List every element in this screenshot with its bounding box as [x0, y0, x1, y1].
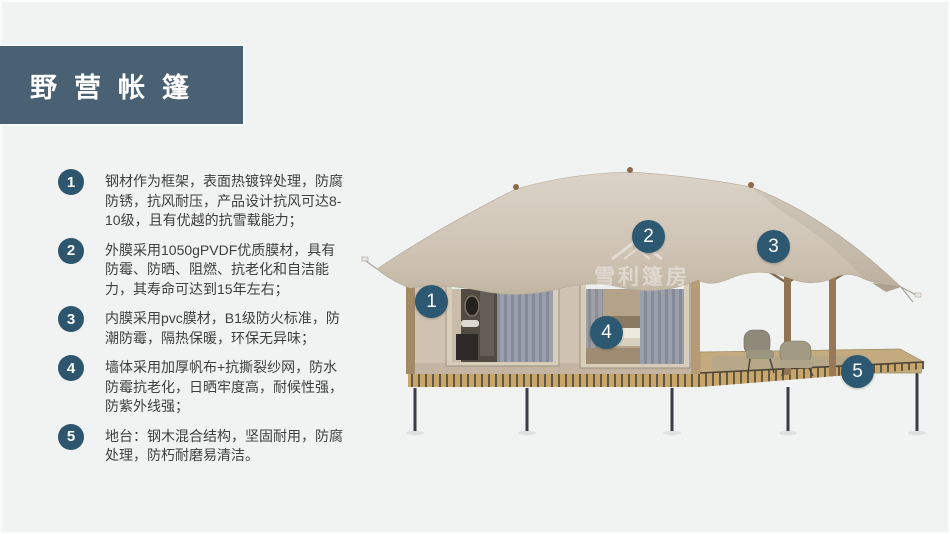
- feature-text-1: 钢材作为框架，表面热镀锌处理，防腐防锈，抗风耐压，产品设计抗风可达8-10级，且…: [105, 172, 347, 231]
- watermark-text: 雪利篷房: [594, 265, 690, 289]
- feature-item-5: 5 地台：钢木混合结构，坚固耐用，防腐处理，防朽耐磨易清洁。: [58, 427, 347, 466]
- curtain-left-window: [497, 286, 553, 362]
- image-marker-4: 4: [590, 316, 623, 349]
- feature-item-3: 3 内膜采用pvc膜材，B1级防火标准，防潮防霉，隔热保暖，环保无异味；: [58, 309, 347, 348]
- feature-badge-3: 3: [58, 306, 84, 332]
- right-tip-tag: [915, 293, 921, 297]
- feature-text-5: 地台：钢木混合结构，坚固耐用，防腐处理，防朽耐磨易清洁。: [105, 427, 347, 466]
- feature-item-2: 2 外膜采用1050gPVDF优质膜材，具有防霉、防晒、阻燃、抗老化和自洁能力，…: [58, 241, 347, 300]
- slide: 野营帐篷: [0, 0, 950, 534]
- feature-text-3: 内膜采用pvc膜材，B1级防火标准，防潮防霉，隔热保暖，环保无异味；: [105, 309, 347, 348]
- image-marker-5: 5: [841, 355, 874, 388]
- cabinet: [456, 334, 478, 360]
- feature-text-2: 外膜采用1050gPVDF优质膜材，具有防霉、防晒、阻燃、抗老化和自洁能力，其寿…: [105, 241, 347, 300]
- feature-item-4: 4 墙体采用加厚帆布+抗撕裂纱网，防水防霉抗老化，日晒牢度高，耐候性强，防紫外线…: [58, 358, 347, 417]
- feature-list: 1 钢材作为框架，表面热镀锌处理，防腐防锈，抗风耐压，产品设计抗风可达8-10级…: [58, 172, 347, 466]
- feature-badge-5: 5: [58, 424, 84, 450]
- image-marker-3: 3: [757, 230, 790, 263]
- canopy-peak-knob: [513, 184, 519, 190]
- feature-badge-1: 1: [58, 169, 84, 195]
- left-tip-tag: [362, 257, 368, 261]
- canopy-apex-knob: [627, 167, 633, 173]
- image-marker-2: 2: [632, 220, 665, 253]
- sink: [461, 320, 479, 327]
- leg-shadows: [406, 431, 926, 435]
- curtain-right-window: [640, 286, 684, 364]
- image-marker-1: 1: [415, 285, 448, 318]
- feature-badge-2: 2: [58, 238, 84, 264]
- mirror: [465, 296, 479, 316]
- feature-item-1: 1 钢材作为框架，表面热镀锌处理，防腐防锈，抗风耐压，产品设计抗风可达8-10级…: [58, 172, 347, 231]
- feature-badge-4: 4: [58, 355, 84, 381]
- canopy-peak-knob-right: [748, 182, 754, 188]
- feature-text-4: 墙体采用加厚帆布+抗撕裂纱网，防水防霉抗老化，日晒牢度高，耐候性强，防紫外线强；: [105, 358, 347, 417]
- shower-panel: [480, 290, 494, 356]
- left-tip-rope: [366, 261, 377, 269]
